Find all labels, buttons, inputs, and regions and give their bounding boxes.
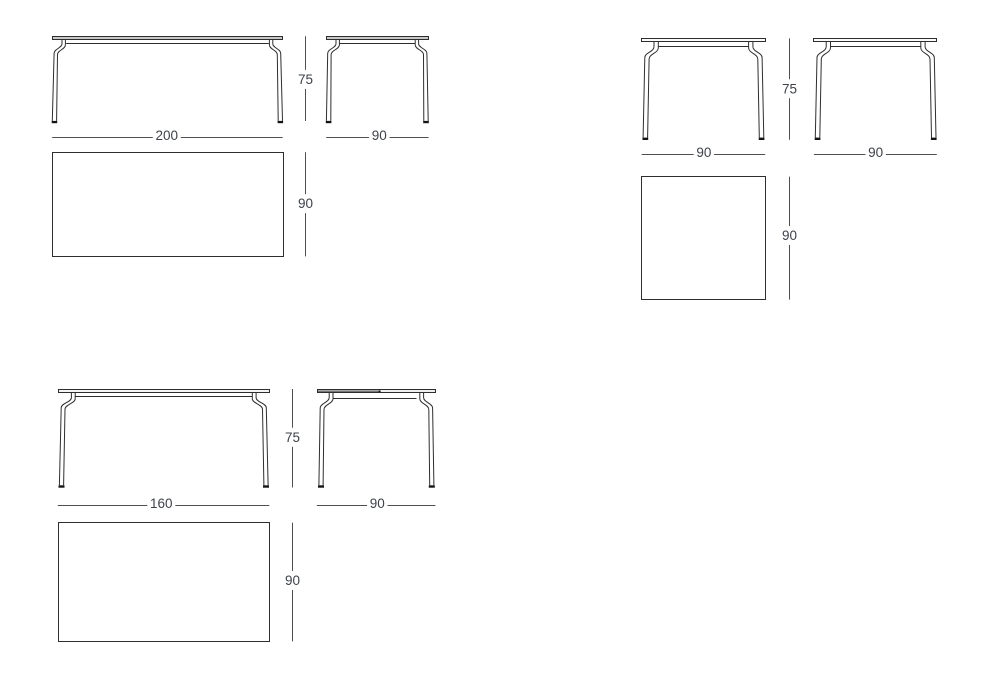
svg-text:75: 75 [285, 430, 300, 445]
svg-text:90: 90 [782, 228, 797, 243]
svg-text:90: 90 [370, 496, 385, 511]
svg-text:90: 90 [696, 145, 711, 160]
svg-text:160: 160 [150, 496, 173, 511]
svg-text:90: 90 [285, 573, 300, 588]
svg-text:75: 75 [298, 72, 313, 87]
svg-text:90: 90 [868, 145, 883, 160]
svg-text:90: 90 [372, 128, 387, 143]
svg-text:200: 200 [156, 128, 179, 143]
svg-text:90: 90 [298, 196, 313, 211]
svg-text:75: 75 [782, 81, 797, 96]
